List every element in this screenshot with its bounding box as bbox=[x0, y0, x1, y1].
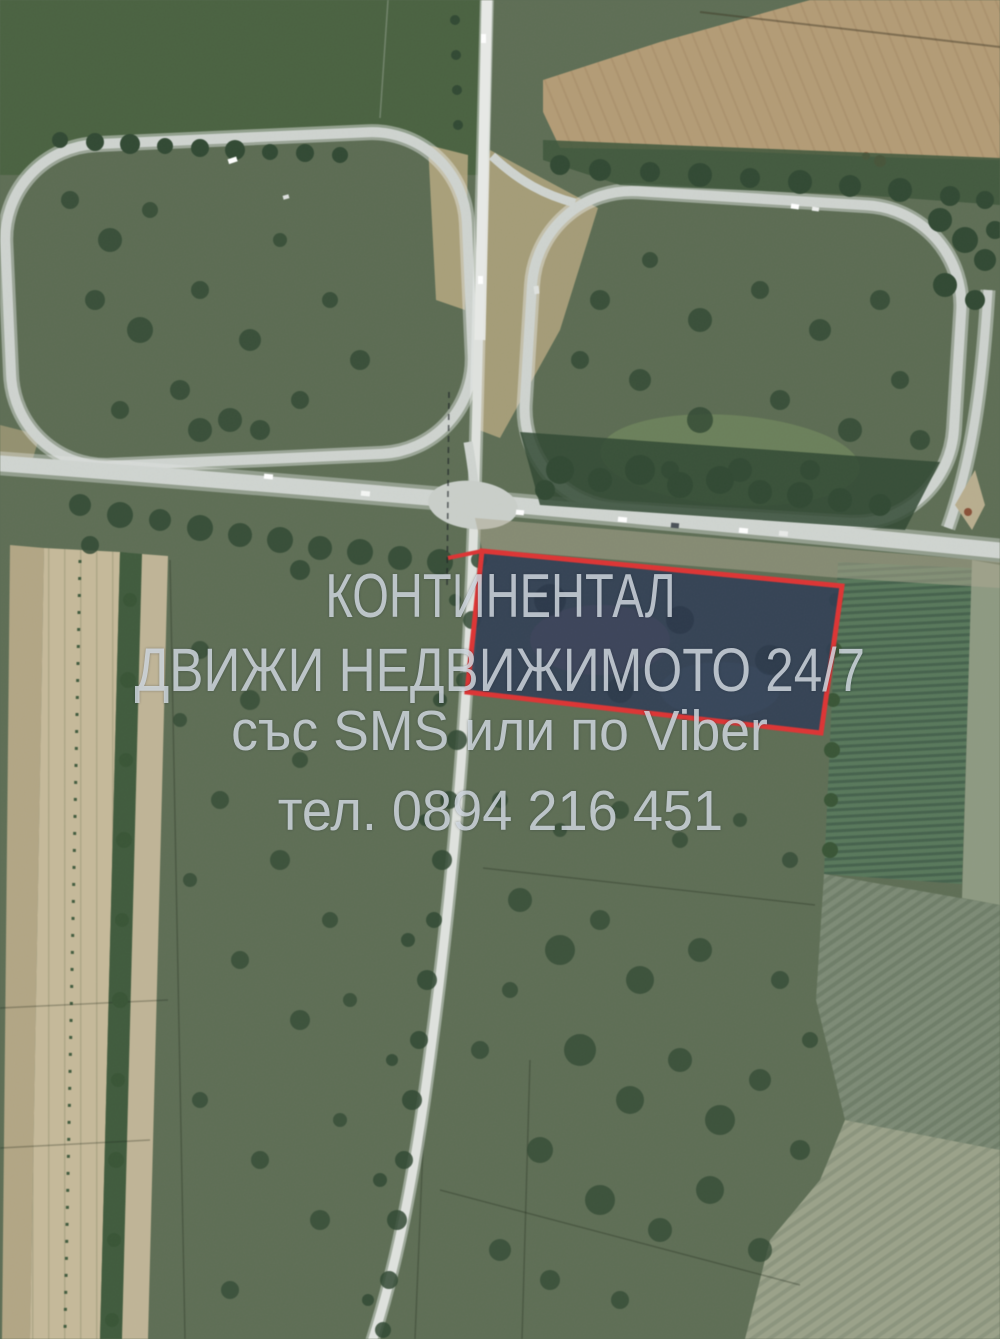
grain-overlay bbox=[0, 0, 1000, 1339]
satellite-photo: КОНТИНЕНТАЛ ДВИЖИ НЕДВИЖИМОТО 24/7 със S… bbox=[0, 0, 1000, 1339]
satellite-map-image bbox=[0, 0, 1000, 1339]
